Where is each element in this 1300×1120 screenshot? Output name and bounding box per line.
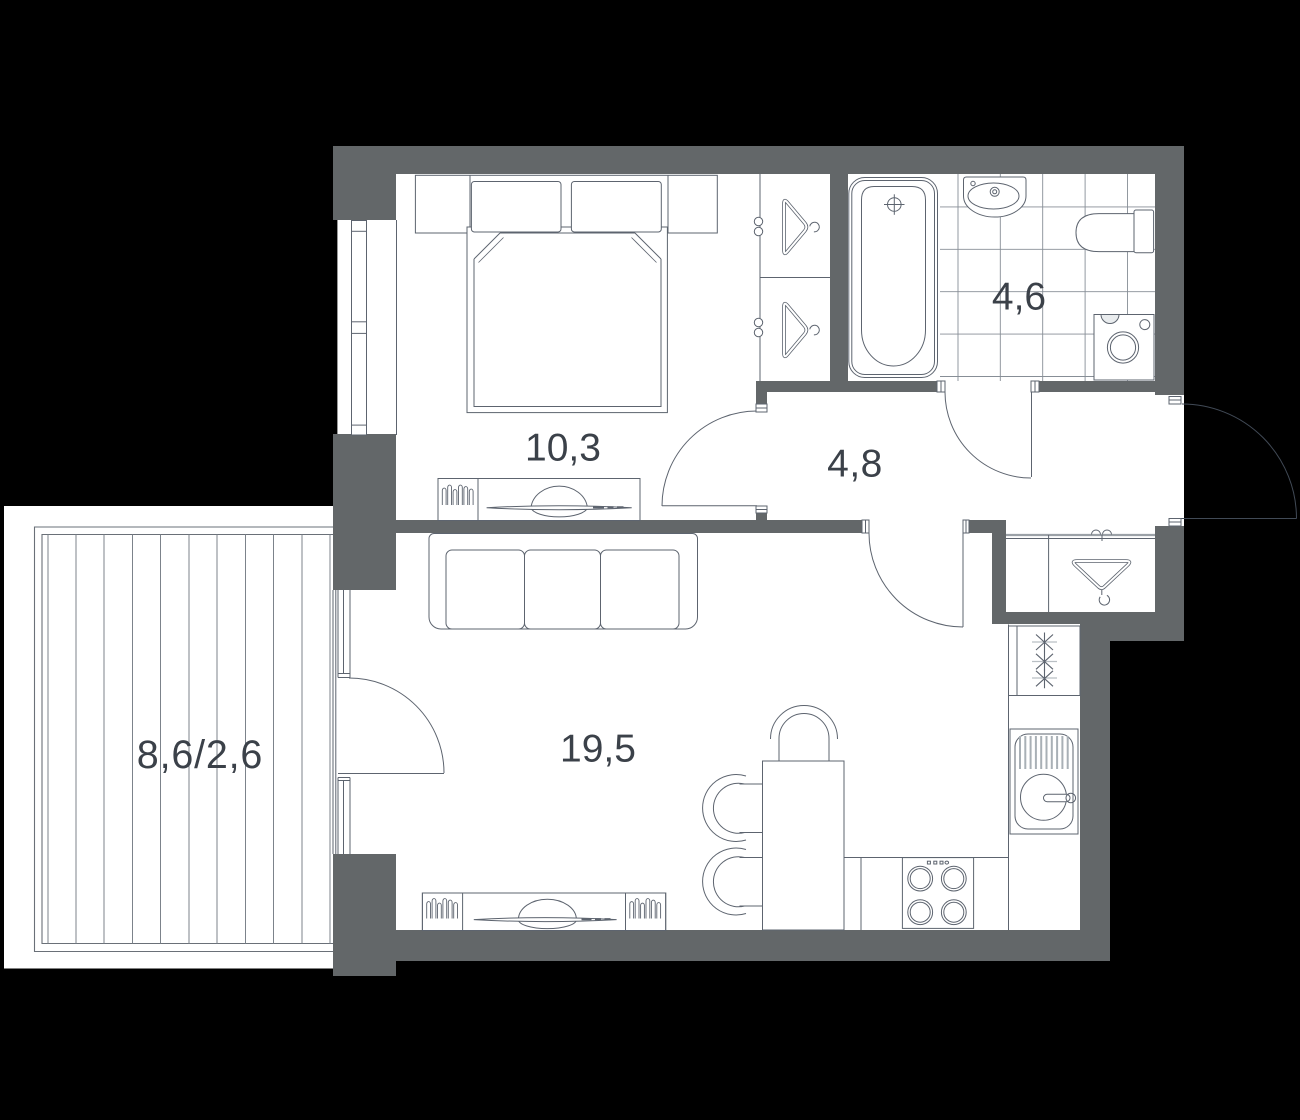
svg-text:8,6/2,6: 8,6/2,6 — [137, 733, 263, 777]
svg-text:10,3: 10,3 — [525, 427, 601, 470]
svg-text:4,6: 4,6 — [992, 276, 1046, 319]
svg-text:4,8: 4,8 — [827, 443, 883, 486]
svg-text:19,5: 19,5 — [560, 728, 636, 771]
